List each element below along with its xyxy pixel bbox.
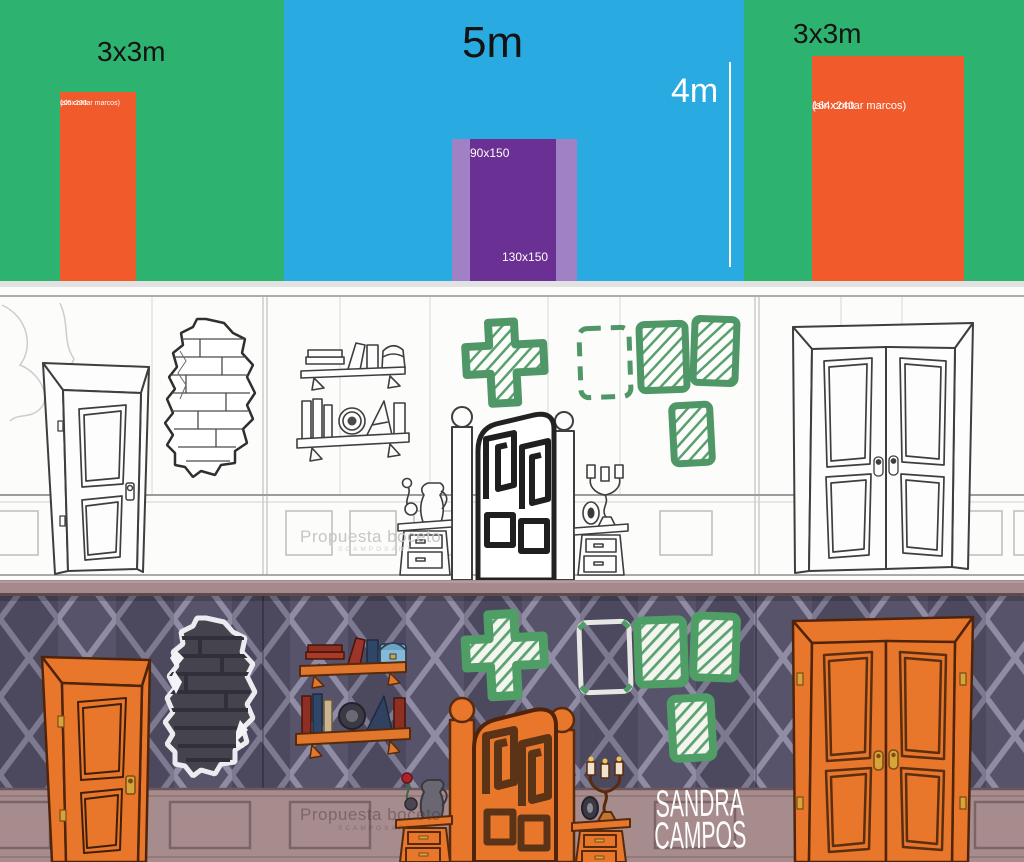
hinge-gold bbox=[960, 797, 966, 809]
sketch-proposal-band: Propuesta boceto SCAMPOSART bbox=[0, 281, 1024, 580]
right-artwork-rect: 164x240 (sin contar marcos) bbox=[812, 56, 964, 281]
left-artwork-note: (sin contar marcos) bbox=[60, 99, 120, 108]
sketch-green-frame-2 bbox=[693, 318, 737, 383]
colored-center-doorway bbox=[450, 698, 574, 862]
hinge-gold bbox=[960, 673, 966, 685]
artist-signature: SANDRA CAMPOS bbox=[653, 782, 746, 858]
hinge-sketch bbox=[58, 421, 63, 431]
colored-right-double-door bbox=[793, 617, 973, 862]
hinge-sketch bbox=[60, 516, 65, 526]
sketch-center-doorway bbox=[452, 407, 574, 580]
colored-artwork-band: SANDRA CAMPOS Propuesta boceto SCAMPOSAR… bbox=[0, 580, 1024, 862]
watermark-subtitle: SCAMPOSART bbox=[338, 825, 413, 832]
colored-left-door bbox=[42, 657, 150, 862]
colored-green-frame-2 bbox=[693, 615, 737, 678]
sketch-right-double-door bbox=[793, 323, 973, 573]
signature-line2: CAMPOS bbox=[654, 814, 747, 858]
center-wall-height-label: 4m bbox=[671, 72, 718, 111]
height-measure-line bbox=[729, 62, 731, 267]
sketch-green-frame-3 bbox=[672, 404, 713, 464]
left-wall-size-label: 3x3m bbox=[97, 36, 165, 68]
hinge-gold bbox=[60, 810, 66, 821]
sketch-left-door bbox=[43, 363, 149, 574]
hinge-gold bbox=[797, 797, 803, 809]
measurement-schematic: 3x3m 5m 4m 3x3m 105x203 (sin contar marc… bbox=[0, 0, 1024, 281]
set-design-concept-board: 3x3m 5m 4m 3x3m 105x203 (sin contar marc… bbox=[0, 0, 1024, 862]
right-wall-size-label: 3x3m bbox=[793, 18, 861, 50]
jug-sketch bbox=[421, 483, 444, 522]
watermark-title: Propuesta boceto bbox=[300, 805, 441, 824]
hinge-gold bbox=[58, 716, 64, 727]
crown-molding bbox=[0, 580, 1024, 601]
center-frame-inner-size: 90x150 bbox=[470, 146, 509, 160]
sketch-green-frame-1 bbox=[639, 323, 687, 391]
right-artwork-note: (sin contar marcos) bbox=[812, 98, 906, 114]
band-divider bbox=[0, 281, 1024, 287]
center-frame-outer-size: 130x150 bbox=[502, 250, 548, 264]
hinge-gold bbox=[797, 673, 803, 685]
colored-green-frame-3 bbox=[670, 697, 713, 759]
center-wall-width-label: 5m bbox=[462, 18, 523, 68]
colored-illustration: SANDRA CAMPOS Propuesta boceto SCAMPOSAR… bbox=[0, 580, 1024, 862]
sketch-illustration: Propuesta boceto SCAMPOSART bbox=[0, 281, 1024, 580]
door-handle-sketch bbox=[126, 483, 134, 500]
left-artwork-rect: 105x203 (sin contar marcos) bbox=[60, 92, 136, 281]
watermark-title: Propuesta boceto bbox=[300, 527, 441, 546]
watermark-subtitle: SCAMPOSART bbox=[338, 546, 413, 553]
colored-green-frame-1 bbox=[637, 619, 685, 685]
